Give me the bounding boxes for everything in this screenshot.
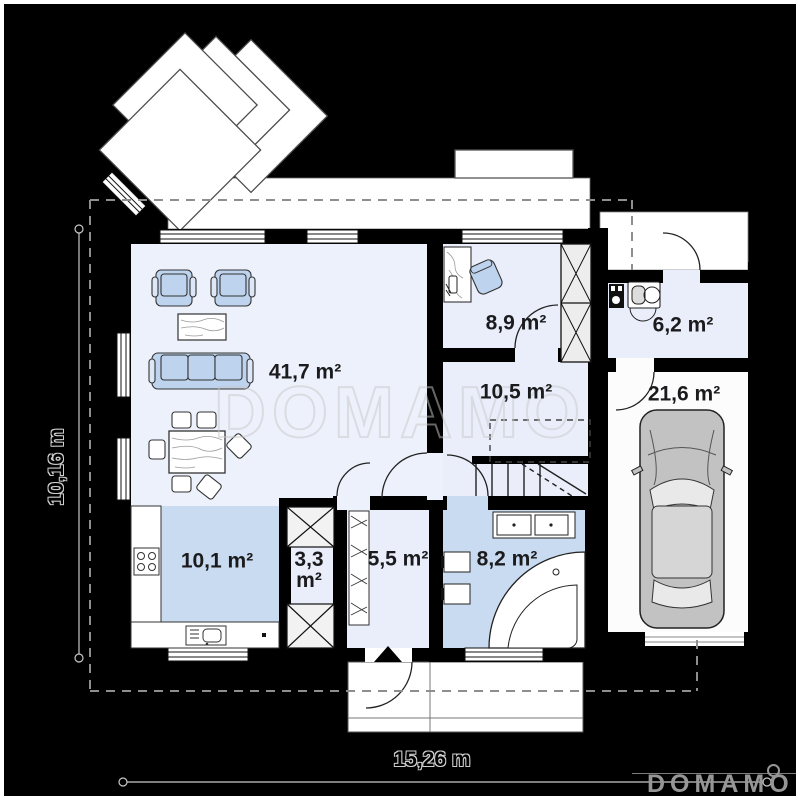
entry-wardrobe [349, 511, 369, 625]
garage-label: 21,6 m² [648, 384, 720, 405]
skylight-block [455, 150, 573, 178]
hall-label: 10,5 m² [480, 382, 552, 403]
kitchen-label: 10,1 m² [181, 551, 253, 572]
entry-label: 5,5 m² [368, 549, 429, 570]
coffee-table [178, 314, 226, 340]
living-window-left-1 [117, 333, 130, 397]
hall-bath-door-gap [447, 496, 488, 510]
chair [172, 412, 191, 428]
bathroom-window [465, 648, 543, 661]
office-window-top [462, 230, 563, 243]
brand-logo-circle-icon [767, 764, 780, 777]
cooktop [134, 548, 159, 575]
chair [149, 440, 165, 459]
pantry-label-area: 3,3 [294, 549, 323, 570]
pantry-label-unit: m² [294, 570, 323, 591]
pantry-label: 3,3 m² [294, 549, 323, 591]
living-window-top-1 [160, 230, 265, 243]
bidet [444, 584, 470, 604]
kitchen-window [168, 648, 248, 661]
garage-door [645, 632, 744, 646]
car [632, 410, 733, 628]
utility-garage-door-gap [616, 358, 654, 372]
office-door-gap [515, 348, 558, 362]
entrance-porch [348, 662, 583, 732]
utility-label: 6,2 m² [653, 315, 714, 336]
bathroom-label: 8,2 m² [477, 549, 538, 570]
kitchen-sink [186, 626, 226, 645]
living-entry-door-gap [337, 496, 370, 510]
floorplan-screenshot: DOMAMO 41,7 m² 8,9 m² 6,2 m² 10,5 m² 21,… [0, 0, 800, 800]
armchair-1 [152, 270, 196, 306]
garage-porch [600, 212, 748, 270]
office-wardrobe [561, 244, 591, 362]
porch-utility-door-gap [663, 270, 700, 283]
counter-dot [262, 633, 266, 637]
armchair-2 [211, 270, 255, 306]
office-label: 8,9 m² [486, 313, 547, 334]
living-room-label: 41,7 m² [269, 362, 341, 383]
living-window-top-2 [307, 230, 358, 243]
chair [172, 476, 191, 492]
vertical-dimension-label: 10,16 m [45, 428, 69, 505]
desk-lamp [449, 276, 457, 293]
horizontal-dimension-label: 15,26 m [393, 748, 470, 772]
living-window-left-2 [117, 438, 130, 500]
living-hall-door-gap [427, 453, 443, 500]
toilet [444, 552, 470, 572]
